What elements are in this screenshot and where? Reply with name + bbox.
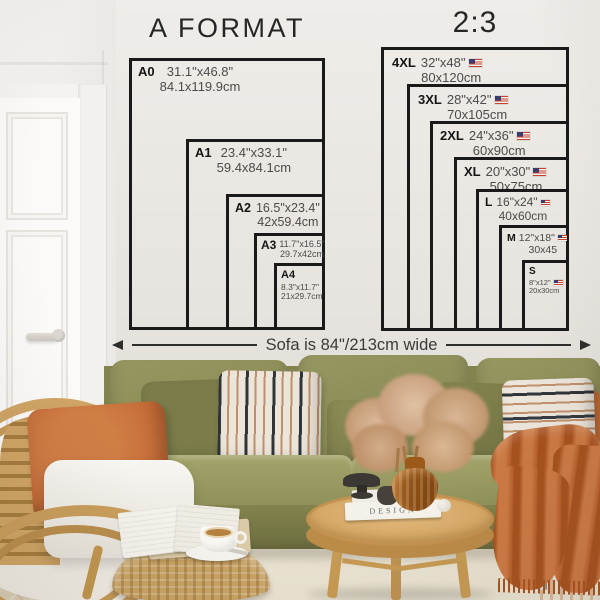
sofa-width-annotation: Sofa is 84"/213cm wide: [112, 336, 591, 354]
size-inches: 12"x18": [519, 232, 555, 244]
size-inches: 31.1"x46.8": [167, 65, 233, 80]
size-cm: 40x60cm: [499, 210, 548, 224]
ratio-title: 2:3: [381, 6, 569, 40]
size-code: A3: [261, 239, 276, 260]
size-rect-s: S 8"x12" 20x30cm: [522, 260, 569, 331]
us-flag-icon: [517, 132, 530, 140]
arrow-right-icon: [580, 340, 591, 350]
size-cm: 59.4x84.1cm: [217, 161, 291, 176]
decor-ball: [437, 499, 451, 512]
a-format-title: A FORMAT: [129, 13, 325, 44]
door-handle-rosette: [52, 329, 65, 342]
size-inches: 28"x42": [447, 93, 492, 108]
size-inches: 32"x48": [421, 56, 466, 71]
table-leg: [391, 554, 401, 600]
cup-handle: [234, 531, 247, 544]
size-code: A4: [281, 269, 323, 282]
size-code: L: [485, 196, 492, 224]
latte: [204, 527, 233, 538]
size-code: A1: [195, 146, 212, 176]
us-flag-icon: [533, 168, 546, 176]
us-flag-icon: [495, 96, 508, 104]
size-code: S: [529, 266, 563, 278]
size-inches: 23.4"x33.1": [221, 146, 287, 161]
size-code: 4XL: [392, 56, 416, 86]
size-code: A2: [235, 201, 251, 230]
size-inches: 20"x30": [486, 165, 531, 180]
size-code: 2XL: [440, 129, 464, 159]
us-flag-icon: [554, 280, 563, 286]
size-cm: 30x45: [528, 244, 557, 256]
size-inches: 11.7"x16.5": [279, 239, 324, 249]
size-inches: 16.5"x23.4": [256, 201, 320, 215]
pedestal-bowl-base: [351, 492, 373, 499]
door-panel: [6, 112, 68, 220]
size-cm: 84.1x119.9cm: [160, 80, 241, 95]
sofa-width-text: Sofa is 84"/213cm wide: [266, 336, 438, 355]
arrow-left-icon: [112, 340, 123, 350]
size-cm: 21x29.7cm: [281, 292, 323, 302]
us-flag-icon: [469, 59, 482, 67]
size-rect-a4: A4 8.3"x11.7" 21x29.7cm: [274, 263, 325, 330]
size-code: 3XL: [418, 93, 442, 123]
size-cm: 42x59.4cm: [257, 215, 318, 229]
poster-size-guide-image: A FORMAT A0 31.1"x46.8" 84.1x119.9cm A1 …: [0, 0, 600, 600]
size-cm: 20x30cm: [529, 287, 559, 296]
size-code: M: [507, 232, 516, 256]
us-flag-icon: [558, 235, 567, 241]
size-inches: 16"x24": [496, 196, 537, 210]
size-cm: 29.7x42cm: [280, 249, 324, 259]
size-code: A0: [138, 65, 155, 95]
crown-molding: [0, 62, 108, 65]
size-inches: 24"x36": [469, 129, 514, 144]
us-flag-icon: [541, 200, 550, 206]
